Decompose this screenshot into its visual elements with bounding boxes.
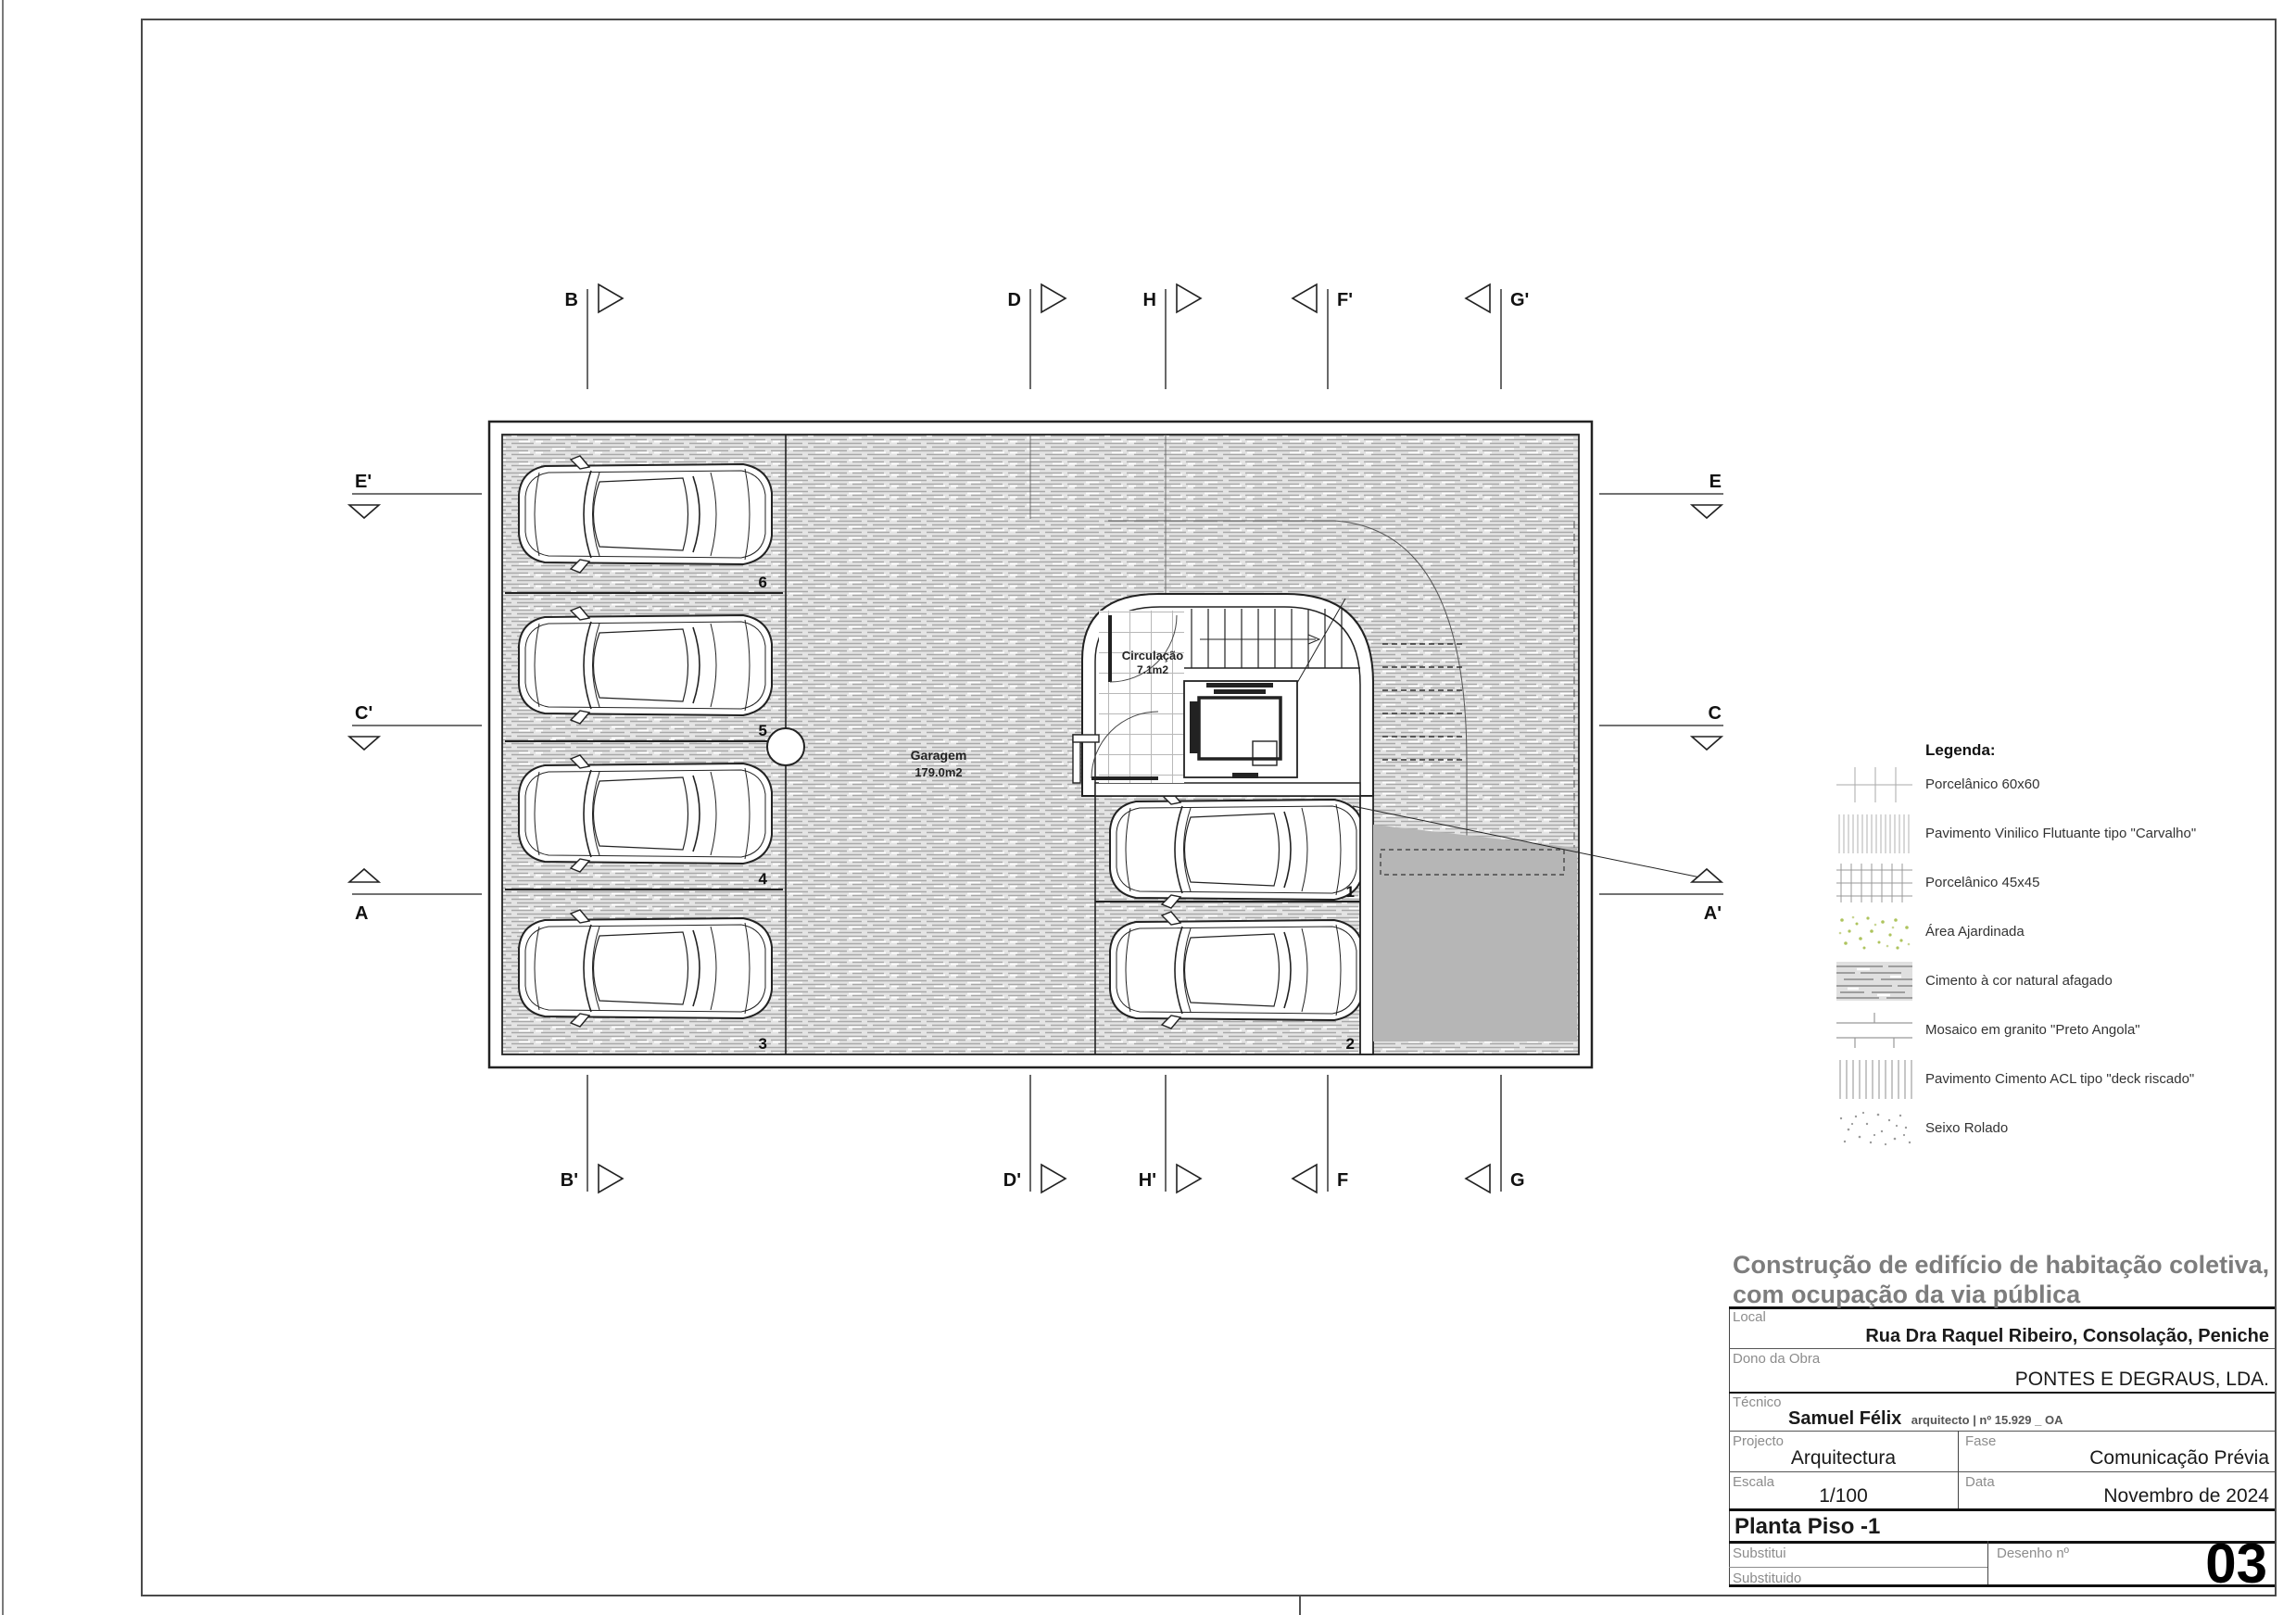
section-markers-top: B D H F' G' [565, 284, 1530, 389]
section-marker-G-prime: G' [1466, 284, 1529, 389]
svg-text:D: D [1008, 290, 1021, 310]
garage-room-label: Garagem [911, 748, 967, 763]
legend-item: Porcelânico 60x60 [1836, 760, 2244, 809]
granite-mosaic-swatch [1836, 1011, 1912, 1050]
car-space-2 [1110, 912, 1363, 1028]
legend-item: Porcelânico 45x45 [1836, 858, 2244, 907]
legend-item-label: Porcelânico 60x60 [1925, 776, 2039, 792]
circulation-area-label: 7.1m2 [1137, 663, 1168, 676]
svg-text:H: H [1143, 290, 1156, 310]
svg-text:D': D' [1003, 1170, 1021, 1191]
legend: Legenda: Porcelânico 60x60 Pavimento Vin… [1836, 741, 2244, 1153]
section-marker-E-prime: E' [349, 472, 482, 518]
divider [1729, 1508, 2275, 1511]
owner-value: PONTES E DEGRAUS, LDA. [2015, 1369, 2269, 1391]
scale-value: 1/100 [1729, 1485, 1958, 1508]
garden-area-swatch [1836, 913, 1912, 952]
legend-item: Pavimento Cimento ACL tipo "deck riscado… [1836, 1054, 2244, 1104]
drawing-number-label: Desenho nº [1997, 1546, 2069, 1561]
title-block: Construção de edifício de habitação cole… [1729, 1249, 2275, 1587]
fold-mark [1299, 1596, 1301, 1615]
legend-item: Cimento à cor natural afagado [1836, 956, 2244, 1005]
divider [1729, 1348, 2275, 1349]
date-label: Data [1965, 1474, 1995, 1490]
legend-item-label: Pavimento Cimento ACL tipo "deck riscado… [1925, 1071, 2194, 1087]
natural-cement-swatch [1836, 962, 1912, 1001]
technician-label: Técnico [1733, 1394, 1782, 1410]
svg-text:G: G [1510, 1170, 1525, 1191]
substitutes-line [1729, 1567, 1987, 1568]
section-marker-F: F [1293, 1075, 1348, 1192]
section-marker-H2: H' [1139, 1075, 1201, 1192]
date-value: Novembro de 2024 [2103, 1485, 2269, 1508]
section-marker-H: H [1143, 284, 1201, 389]
space-number-2: 2 [1346, 1035, 1355, 1053]
phase-value: Comunicação Prévia [2089, 1447, 2269, 1470]
svg-text:A': A' [1704, 903, 1722, 924]
svg-text:F: F [1337, 1170, 1348, 1191]
section-marker-A-prime: A' [1599, 869, 1723, 924]
divider [1729, 1392, 2275, 1394]
rolled-pebble-swatch [1836, 1109, 1912, 1148]
space-number-6: 6 [759, 574, 767, 591]
circulation-room-label: Circulação [1122, 649, 1184, 662]
section-markers-right: E C A' [1599, 472, 1723, 924]
legend-item-label: Área Ajardinada [1925, 924, 2025, 940]
porcelain-60x60-swatch [1836, 765, 1912, 804]
legend-item-label: Seixo Rolado [1925, 1120, 2008, 1136]
technician-credentials: arquitecto | nº 15.929 _ OA [1911, 1413, 2063, 1427]
svg-text:E': E' [355, 472, 372, 492]
legend-header: Legenda: [1925, 741, 2244, 760]
legend-item: Pavimento Vinilico Flutuante tipo "Carva… [1836, 809, 2244, 858]
legend-item-label: Porcelânico 45x45 [1925, 875, 2039, 890]
divider [1729, 1431, 2275, 1432]
divider [1729, 1471, 2275, 1472]
drawing-name: Planta Piso -1 [1735, 1514, 1880, 1540]
section-marker-D: D [1008, 284, 1066, 389]
space-number-4: 4 [759, 870, 768, 888]
column-divider [1958, 1431, 1959, 1508]
svg-text:E: E [1709, 472, 1722, 492]
section-marker-B: B [565, 284, 623, 389]
section-markers-left: E' C' A [349, 472, 482, 924]
svg-text:C': C' [355, 703, 372, 724]
svg-text:B: B [565, 290, 578, 310]
substituted-label: Substituido [1733, 1571, 1801, 1586]
svg-text:A: A [355, 903, 368, 924]
car-space-1 [1110, 791, 1363, 908]
local-label: Local [1733, 1309, 1766, 1325]
section-marker-C: C [1599, 703, 1723, 750]
technician-value: Samuel Félix arquitecto | nº 15.929 _ OA [1788, 1408, 2063, 1430]
legend-item-label: Cimento à cor natural afagado [1925, 973, 2113, 989]
structural-column [767, 728, 804, 765]
drawing-number: 03 [2205, 1536, 2267, 1592]
section-markers-bottom: B' D' H' F G [561, 1075, 1525, 1192]
floor-plan-drawing: Garagem 179.0m2 Circulação 7.1m2 6 5 4 3… [334, 250, 1779, 1260]
section-marker-D2: D' [1003, 1075, 1066, 1192]
divider [1729, 1584, 2275, 1587]
legend-item: Seixo Rolado [1836, 1104, 2244, 1153]
project-title-line2: com ocupação da via pública [1733, 1281, 2080, 1309]
acl-cement-deck-swatch [1836, 1060, 1912, 1099]
car-space-6 [519, 456, 772, 573]
technician-name: Samuel Félix [1788, 1408, 1901, 1429]
svg-text:H': H' [1139, 1170, 1156, 1191]
space-number-3: 3 [759, 1035, 767, 1053]
divider [1729, 1541, 2275, 1544]
svg-text:G': G' [1510, 290, 1529, 310]
garage-area-label: 179.0m2 [915, 765, 962, 779]
section-marker-E: E [1599, 472, 1723, 518]
legend-item-label: Mosaico em granito "Preto Angola" [1925, 1022, 2140, 1038]
owner-label: Dono da Obra [1733, 1351, 1820, 1367]
elevator-shaft [1184, 681, 1297, 778]
svg-text:F': F' [1337, 290, 1353, 310]
local-value: Rua Dra Raquel Ribeiro, Consolação, Peni… [1865, 1326, 2269, 1347]
car-space-5 [519, 607, 772, 724]
section-marker-C-prime: C' [349, 703, 482, 750]
car-space-4 [519, 755, 772, 872]
legend-item: Mosaico em granito "Preto Angola" [1836, 1005, 2244, 1054]
section-marker-F-prime: F' [1293, 284, 1353, 389]
column-divider [1987, 1541, 1988, 1584]
space-number-1: 1 [1346, 883, 1355, 901]
vinyl-floating-floor-swatch [1836, 814, 1912, 853]
section-marker-A: A [349, 869, 482, 924]
porcelain-45x45-swatch [1836, 864, 1912, 902]
phase-label: Fase [1965, 1433, 1996, 1449]
substitutes-label: Substitui [1733, 1546, 1786, 1561]
svg-text:C: C [1709, 703, 1722, 724]
legend-item: Área Ajardinada [1836, 907, 2244, 956]
section-marker-B2: B' [561, 1075, 623, 1192]
project-value: Arquitectura [1729, 1447, 1958, 1470]
section-marker-G: G [1466, 1075, 1525, 1192]
legend-item-label: Pavimento Vinilico Flutuante tipo "Carva… [1925, 826, 2196, 841]
project-title-line1: Construção de edifício de habitação cole… [1733, 1251, 2269, 1280]
drawing-sheet: Garagem 179.0m2 Circulação 7.1m2 6 5 4 3… [0, 0, 2296, 1615]
space-number-5: 5 [759, 722, 767, 739]
svg-text:B': B' [561, 1170, 578, 1191]
page-edge-line [2, 0, 4, 1615]
car-space-3 [519, 910, 772, 1027]
